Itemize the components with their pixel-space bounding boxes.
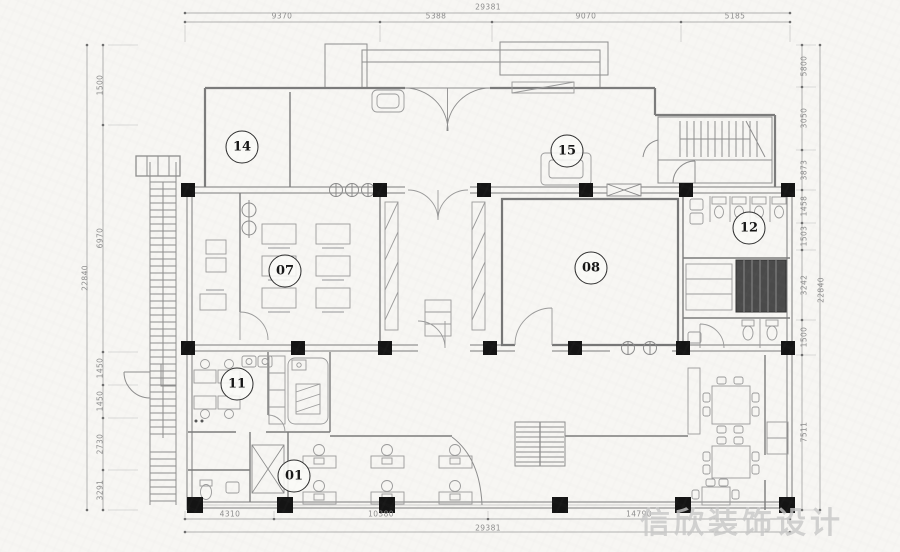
room-08-walls (502, 199, 678, 345)
floor-plan-sheet: 1415120708110129381937053889070518529381… (0, 0, 900, 552)
corridor-double-door (408, 190, 468, 220)
lobby-fixtures (372, 90, 591, 185)
staircase-top-right (643, 117, 772, 183)
room-08-door (515, 308, 552, 345)
grid-bubbles (330, 183, 657, 355)
shaft-x-box (607, 184, 641, 196)
room07-desk-labels (206, 248, 344, 312)
room07-door (240, 312, 268, 340)
structural-columns (181, 183, 795, 513)
corridor-cabinets (385, 202, 485, 336)
room11-dots (195, 420, 204, 423)
ahu-equipment-block (736, 260, 786, 312)
watermark: 信欣装饰设计 (640, 498, 900, 542)
entrance-double-door (405, 88, 490, 131)
toilet-lower-left (200, 480, 239, 500)
interior-partitions (188, 92, 790, 510)
staircase-lower-middle (515, 422, 565, 466)
room07-equipment-circles (242, 200, 256, 238)
office-workstations (303, 445, 472, 505)
floor-plan-drawing (0, 0, 900, 552)
dining-tables (688, 368, 788, 505)
room07-desks (200, 224, 350, 310)
room11-workstations (194, 360, 240, 419)
restroom-lower (688, 318, 778, 348)
staircase-left (124, 156, 180, 505)
restroom-top (690, 196, 786, 224)
shaft-x-brace (252, 445, 284, 493)
entrance-canopy (325, 42, 608, 88)
pantry-fixtures (242, 356, 328, 424)
curved-partition (452, 437, 482, 505)
service-shelving (686, 264, 732, 310)
room11-door (268, 415, 285, 432)
screenshot-root: { "sheet": {"background": "#f7f6f3", "li… (0, 0, 900, 552)
corridor-lower-door (418, 321, 445, 348)
